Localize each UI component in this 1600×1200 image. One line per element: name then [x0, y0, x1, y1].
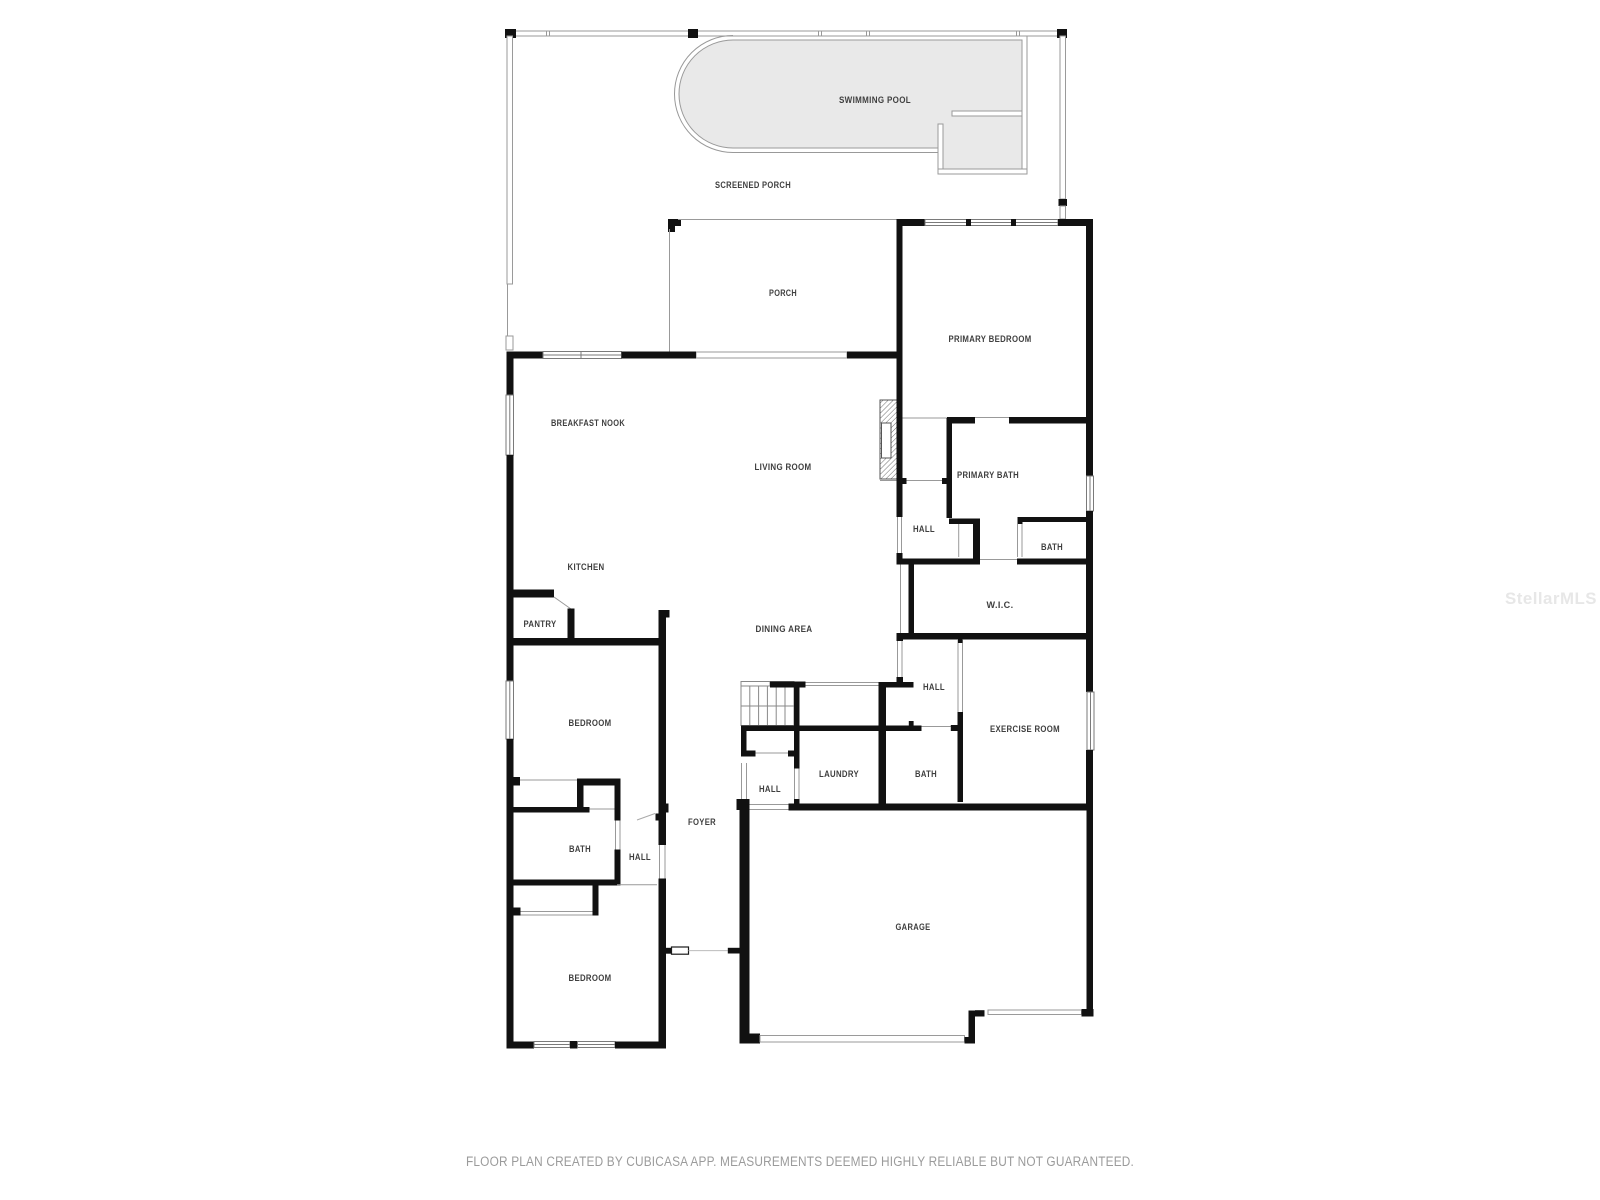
svg-text:HALL: HALL — [923, 682, 945, 693]
svg-text:DINING AREA: DINING AREA — [756, 624, 813, 635]
svg-text:LIVING ROOM: LIVING ROOM — [755, 462, 812, 473]
svg-text:HALL: HALL — [913, 524, 935, 535]
svg-text:GARAGE: GARAGE — [896, 922, 931, 933]
svg-text:BATH: BATH — [915, 769, 937, 780]
svg-text:SWIMMING POOL: SWIMMING POOL — [839, 95, 911, 106]
svg-text:LAUNDRY: LAUNDRY — [819, 769, 859, 780]
svg-text:W.I.C.: W.I.C. — [987, 600, 1014, 611]
svg-text:StellarMLS: StellarMLS — [1505, 589, 1597, 608]
svg-text:HALL: HALL — [759, 784, 781, 795]
svg-text:PORCH: PORCH — [769, 288, 797, 299]
svg-text:PRIMARY BEDROOM: PRIMARY BEDROOM — [949, 334, 1032, 345]
svg-text:SCREENED PORCH: SCREENED PORCH — [715, 180, 791, 191]
svg-text:BATH: BATH — [569, 844, 591, 855]
svg-text:EXERCISE ROOM: EXERCISE ROOM — [990, 724, 1060, 735]
svg-text:PANTRY: PANTRY — [524, 619, 557, 630]
svg-text:FOYER: FOYER — [688, 817, 716, 828]
svg-text:BEDROOM: BEDROOM — [569, 718, 612, 729]
svg-text:FLOOR PLAN CREATED BY CUBICASA: FLOOR PLAN CREATED BY CUBICASA APP. MEAS… — [466, 1154, 1134, 1169]
svg-text:KITCHEN: KITCHEN — [568, 562, 605, 573]
svg-text:PRIMARY BATH: PRIMARY BATH — [957, 470, 1019, 481]
svg-text:BATH: BATH — [1041, 542, 1063, 553]
svg-text:HALL: HALL — [629, 852, 651, 863]
svg-text:BREAKFAST NOOK: BREAKFAST NOOK — [551, 418, 625, 429]
svg-text:BEDROOM: BEDROOM — [569, 973, 612, 984]
